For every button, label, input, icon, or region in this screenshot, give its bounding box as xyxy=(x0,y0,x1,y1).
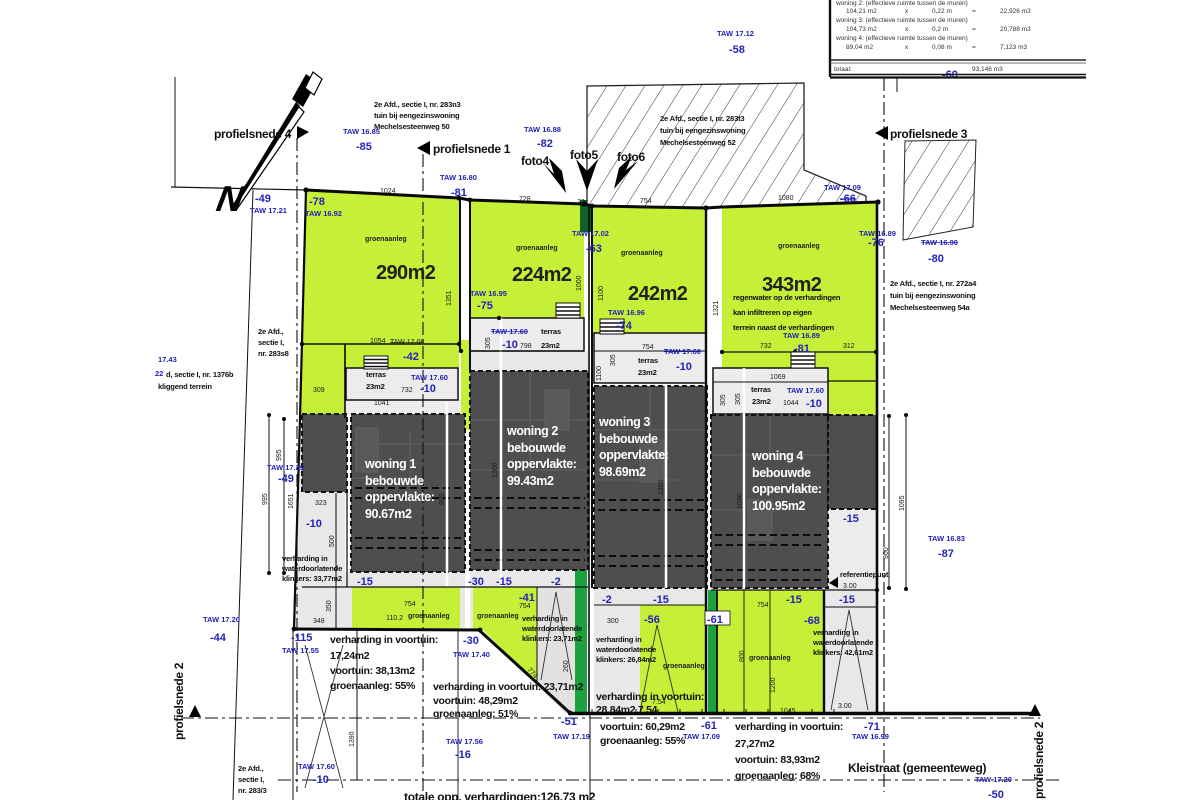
svg-text:TAW 17.21: TAW 17.21 xyxy=(250,206,287,215)
svg-text:-115: -115 xyxy=(291,632,312,644)
svg-text:groenaanleg: 51%: groenaanleg: 51% xyxy=(433,708,519,720)
svg-text:verharding in voortuin: 23,71m: verharding in voortuin: 23,71m2 xyxy=(433,681,583,693)
svg-text:groenaanleg: groenaanleg xyxy=(749,655,791,662)
svg-text:1054: 1054 xyxy=(370,338,386,345)
svg-text:1200: 1200 xyxy=(770,677,777,693)
svg-text:profielsnede 2: profielsnede 2 xyxy=(172,662,186,740)
svg-text:-66: -66 xyxy=(840,193,856,205)
svg-text:foto6: foto6 xyxy=(617,150,645,164)
svg-text:1095: 1095 xyxy=(899,495,906,511)
svg-text:-44: -44 xyxy=(210,632,227,644)
svg-text:300: 300 xyxy=(607,618,619,625)
svg-text:23m2: 23m2 xyxy=(638,368,657,377)
svg-text:110.2: 110.2 xyxy=(386,615,403,622)
svg-text:TAW 17.60: TAW 17.60 xyxy=(491,327,528,336)
svg-text:groenaanleg: groenaanleg xyxy=(621,250,663,257)
svg-text:tuin bij eengezinswoning: tuin bij eengezinswoning xyxy=(374,111,460,120)
svg-text:23m2: 23m2 xyxy=(366,382,385,391)
svg-text:oppervlakte:: oppervlakte: xyxy=(752,482,822,496)
svg-text:Mechelsesteenweg 54a: Mechelsesteenweg 54a xyxy=(890,303,971,312)
svg-text:groenaanleg: 55%: groenaanleg: 55% xyxy=(600,735,686,747)
svg-text:305: 305 xyxy=(735,393,742,405)
svg-text:TAW 17.09: TAW 17.09 xyxy=(824,183,861,192)
svg-text:104,73 m2: 104,73 m2 xyxy=(846,26,877,33)
svg-text:klinkers: 23,71m2: klinkers: 23,71m2 xyxy=(522,634,582,643)
svg-text:312: 312 xyxy=(843,343,855,350)
svg-text:1321: 1321 xyxy=(713,300,720,316)
svg-text:groenaanleg: groenaanleg xyxy=(365,236,407,243)
svg-text:TAW 16.83: TAW 16.83 xyxy=(928,534,965,543)
svg-text:20,788 m3: 20,788 m3 xyxy=(1000,26,1031,33)
svg-text:93,146 m3: 93,146 m3 xyxy=(972,66,1003,73)
svg-text:7,123 m3: 7,123 m3 xyxy=(1000,44,1027,51)
svg-text:TAW 17.40: TAW 17.40 xyxy=(453,650,490,659)
svg-text:1096: 1096 xyxy=(737,493,744,509)
svg-text:98.69m2: 98.69m2 xyxy=(599,465,646,479)
svg-text:d, sectie I, nr. 1376b: d, sectie I, nr. 1376b xyxy=(166,370,234,379)
svg-text:-15: -15 xyxy=(786,594,802,606)
svg-text:sectie I,: sectie I, xyxy=(258,338,284,347)
svg-text:woning 3: woning 3 xyxy=(598,415,650,429)
svg-text:754: 754 xyxy=(757,602,769,609)
svg-text:323: 323 xyxy=(315,500,327,507)
svg-text:bebouwde: bebouwde xyxy=(507,441,566,455)
svg-text:-10: -10 xyxy=(806,398,822,410)
svg-text:350: 350 xyxy=(326,600,333,612)
svg-text:TAW 17.20: TAW 17.20 xyxy=(203,615,240,624)
svg-text:17.43: 17.43 xyxy=(158,355,177,364)
svg-text:TAW 16.90: TAW 16.90 xyxy=(921,238,958,247)
svg-text:1041: 1041 xyxy=(374,400,390,407)
svg-text:305: 305 xyxy=(485,337,492,349)
svg-text:-15: -15 xyxy=(843,513,859,525)
svg-text:totaal:: totaal: xyxy=(834,66,852,73)
svg-text:verharding in: verharding in xyxy=(282,554,328,563)
svg-text:profielsnede 4: profielsnede 4 xyxy=(214,127,292,141)
svg-text:kliggend terrein: kliggend terrein xyxy=(158,382,212,391)
svg-text:305: 305 xyxy=(720,394,727,406)
svg-text:oppervlakte:: oppervlakte: xyxy=(599,448,669,462)
svg-text:TAW 16.80: TAW 16.80 xyxy=(440,173,477,182)
svg-text:754: 754 xyxy=(519,603,531,610)
svg-text:100.95m2: 100.95m2 xyxy=(752,499,806,513)
svg-text:3.00: 3.00 xyxy=(843,583,857,590)
svg-text:754: 754 xyxy=(404,601,416,608)
svg-text:TAW 17.60: TAW 17.60 xyxy=(411,373,448,382)
svg-text:groenaanleg: 68%: groenaanleg: 68% xyxy=(735,770,821,782)
svg-text:1351: 1351 xyxy=(446,290,453,306)
svg-text:22,926 m3: 22,926 m3 xyxy=(1000,8,1031,15)
svg-text:terras: terras xyxy=(541,327,561,336)
svg-text:28,84m2 7,54: 28,84m2 7,54 xyxy=(596,704,658,716)
svg-text:=: = xyxy=(972,8,976,15)
svg-text:305: 305 xyxy=(610,354,617,366)
svg-text:terras: terras xyxy=(638,356,658,365)
svg-text:groenaanleg: groenaanleg xyxy=(477,613,519,620)
svg-text:728: 728 xyxy=(519,196,531,203)
svg-text:voortuin: 83,93m2: voortuin: 83,93m2 xyxy=(735,754,820,766)
svg-text:klinkers: 26,84m2: klinkers: 26,84m2 xyxy=(596,655,656,664)
svg-text:-15: -15 xyxy=(357,576,373,588)
svg-text:tuin bij eengezinswoning: tuin bij eengezinswoning xyxy=(890,291,976,300)
svg-text:90.67m2: 90.67m2 xyxy=(365,507,412,521)
svg-text:2e Afd.,: 2e Afd., xyxy=(258,327,284,336)
svg-text:1024: 1024 xyxy=(380,188,396,195)
svg-text:waterdoorlatende: waterdoorlatende xyxy=(281,564,342,573)
svg-text:500: 500 xyxy=(329,535,336,547)
svg-text:0,08 m: 0,08 m xyxy=(932,44,952,51)
svg-text:TAW 17.29: TAW 17.29 xyxy=(267,463,304,472)
svg-text:TAW 17.60: TAW 17.60 xyxy=(298,762,335,771)
svg-text:309: 309 xyxy=(313,387,325,394)
svg-text:1080: 1080 xyxy=(778,195,794,202)
svg-text:TAW 17.19: TAW 17.19 xyxy=(553,732,590,741)
svg-text:-80: -80 xyxy=(928,253,944,265)
svg-text:-74: -74 xyxy=(616,320,633,332)
svg-text:798: 798 xyxy=(520,343,532,350)
svg-text:1000: 1000 xyxy=(576,275,583,291)
svg-text:1651: 1651 xyxy=(288,493,295,509)
svg-text:profielsnede 1: profielsnede 1 xyxy=(433,142,511,156)
svg-text:TAW 17.60: TAW 17.60 xyxy=(787,386,824,395)
svg-text:verharding in: verharding in xyxy=(813,628,859,637)
svg-text:verharding in voortuin:: verharding in voortuin: xyxy=(735,721,843,733)
svg-text:2e Afd., sectie I, nr. 283n3: 2e Afd., sectie I, nr. 283n3 xyxy=(374,100,461,109)
svg-text:-87: -87 xyxy=(938,548,954,560)
svg-text:groenaanleg: groenaanleg xyxy=(408,613,450,620)
svg-text:-10: -10 xyxy=(676,361,692,373)
svg-text:-10: -10 xyxy=(502,339,518,351)
svg-text:-76: -76 xyxy=(868,237,884,249)
svg-text:referentiepunt: referentiepunt xyxy=(840,570,889,579)
svg-text:-2: -2 xyxy=(602,594,612,606)
svg-text:-15: -15 xyxy=(653,594,669,606)
svg-text:-10: -10 xyxy=(306,518,322,530)
svg-text:1044: 1044 xyxy=(783,400,799,407)
svg-text:-68: -68 xyxy=(804,615,820,627)
svg-text:TAW 17.55: TAW 17.55 xyxy=(282,646,319,655)
svg-text:TAW 17.09: TAW 17.09 xyxy=(683,732,720,741)
svg-text:bebouwde: bebouwde xyxy=(599,432,658,446)
svg-text:-16: -16 xyxy=(455,749,471,761)
svg-text:waterdoorlatende: waterdoorlatende xyxy=(812,638,873,647)
svg-text:995: 995 xyxy=(262,493,269,505)
svg-text:TAW 17.12: TAW 17.12 xyxy=(717,29,754,38)
svg-text:woning 1: woning 1 xyxy=(364,457,416,471)
svg-text:22: 22 xyxy=(155,369,163,378)
svg-text:=: = xyxy=(972,26,976,33)
svg-text:348: 348 xyxy=(313,618,325,625)
svg-text:27,27m2: 27,27m2 xyxy=(735,738,775,750)
svg-text:TAW 17.56: TAW 17.56 xyxy=(446,737,483,746)
svg-text:754: 754 xyxy=(642,344,654,351)
svg-text:woning 3: (effectieve ruimte: woning 3: (effectieve ruimte tussen de m… xyxy=(835,17,968,24)
svg-text:verharding in voortuin:: verharding in voortuin: xyxy=(330,634,438,646)
svg-text:Kleistraat (gemeenteweg): Kleistraat (gemeenteweg) xyxy=(848,761,986,775)
svg-text:-56: -56 xyxy=(644,614,660,626)
svg-text:-2: -2 xyxy=(551,576,561,588)
svg-text:TAW 16.85: TAW 16.85 xyxy=(343,127,380,136)
svg-text:104,21 m2: 104,21 m2 xyxy=(846,8,877,15)
svg-text:nr. 283s8: nr. 283s8 xyxy=(258,349,289,358)
svg-text:-50: -50 xyxy=(988,789,1004,800)
svg-text:-49: -49 xyxy=(255,193,271,205)
svg-text:1045: 1045 xyxy=(780,708,796,715)
svg-text:profielsnede 2: profielsnede 2 xyxy=(1032,721,1046,799)
svg-text:verharding in: verharding in xyxy=(596,635,642,644)
svg-text:TAW 17.20: TAW 17.20 xyxy=(975,775,1012,784)
svg-text:TAW 16.92: TAW 16.92 xyxy=(305,209,342,218)
svg-text:kan infiltreren op eigen: kan infiltreren op eigen xyxy=(733,308,812,317)
svg-text:23m2: 23m2 xyxy=(541,341,560,350)
svg-text:-49: -49 xyxy=(278,473,294,485)
svg-text:woning 4: woning 4 xyxy=(751,449,803,463)
svg-text:22: 22 xyxy=(577,199,585,206)
svg-text:1300: 1300 xyxy=(658,479,665,495)
svg-text:-81: -81 xyxy=(794,343,810,355)
svg-text:groenaanleg: 55%: groenaanleg: 55% xyxy=(330,680,416,692)
svg-text:1390: 1390 xyxy=(349,731,356,747)
svg-text:klinkers: 42,61m2: klinkers: 42,61m2 xyxy=(813,648,873,657)
svg-text:Mechelsesteenweg 50: Mechelsesteenweg 50 xyxy=(374,122,450,131)
svg-text:1300: 1300 xyxy=(492,462,499,478)
svg-text:groenaanleg: groenaanleg xyxy=(516,245,558,252)
svg-text:regenwater op de verhardingen: regenwater op de verhardingen xyxy=(733,293,841,302)
svg-text:242m2: 242m2 xyxy=(628,283,688,305)
svg-text:foto5: foto5 xyxy=(570,148,598,162)
svg-text:Mechelsesteenweg 52: Mechelsesteenweg 52 xyxy=(660,138,736,147)
svg-text:verharding in voortuin:: verharding in voortuin: xyxy=(596,691,704,703)
svg-text:voortuin: 38,13m2: voortuin: 38,13m2 xyxy=(330,665,415,677)
svg-text:23m2: 23m2 xyxy=(752,397,771,406)
svg-text:732: 732 xyxy=(401,387,413,394)
svg-text:foto4: foto4 xyxy=(521,154,549,168)
svg-text:17,24m2: 17,24m2 xyxy=(330,650,370,662)
svg-text:TAW 16.96: TAW 16.96 xyxy=(608,308,645,317)
svg-text:oppervlakte:: oppervlakte: xyxy=(365,490,435,504)
svg-text:TAW 16.88: TAW 16.88 xyxy=(524,125,561,134)
svg-text:terras: terras xyxy=(751,385,771,394)
svg-text:-75: -75 xyxy=(477,300,493,312)
svg-text:800: 800 xyxy=(739,650,746,662)
svg-text:TAW 17.02: TAW 17.02 xyxy=(572,229,609,238)
svg-text:2e Afd., sectie I, nr. 283t3: 2e Afd., sectie I, nr. 283t3 xyxy=(660,114,744,123)
svg-text:-51: -51 xyxy=(561,716,577,728)
svg-text:oppervlakte:: oppervlakte: xyxy=(507,457,577,471)
svg-text:TAW 17.60: TAW 17.60 xyxy=(664,347,701,356)
svg-text:TAW 16.89: TAW 16.89 xyxy=(783,331,820,340)
svg-text:TAW 16.99: TAW 16.99 xyxy=(852,732,889,741)
svg-text:-81: -81 xyxy=(451,187,467,199)
svg-text:groenaanleg: groenaanleg xyxy=(663,663,705,670)
svg-text:3.00: 3.00 xyxy=(838,703,852,710)
svg-text:754: 754 xyxy=(640,198,652,205)
svg-text:-82: -82 xyxy=(537,138,553,150)
svg-text:99.43m2: 99.43m2 xyxy=(507,474,554,488)
svg-text:-10: -10 xyxy=(313,774,329,786)
svg-text:-30: -30 xyxy=(468,576,484,588)
svg-text:groenaanleg: groenaanleg xyxy=(778,243,820,250)
svg-text:bebouwde: bebouwde xyxy=(365,474,424,488)
svg-text:-42: -42 xyxy=(403,351,419,363)
svg-text:732: 732 xyxy=(760,343,772,350)
svg-text:woning 4: (effectieve ruimte: woning 4: (effectieve ruimte tussen de m… xyxy=(835,35,968,42)
svg-text:-30: -30 xyxy=(463,635,479,647)
svg-text:totale opp. verhardingen:126,7: totale opp. verhardingen:126,73 m2 xyxy=(404,790,596,800)
svg-text:terras: terras xyxy=(366,370,386,379)
svg-text:-63: -63 xyxy=(586,243,602,255)
svg-text:waterdoorlatende: waterdoorlatende xyxy=(521,624,582,633)
svg-text:1100: 1100 xyxy=(598,286,605,301)
svg-text:-78: -78 xyxy=(309,196,325,208)
svg-text:tuin bij eengezinswoning: tuin bij eengezinswoning xyxy=(660,126,746,135)
svg-text:7.54: 7.54 xyxy=(652,699,666,706)
svg-text:0,22 m: 0,22 m xyxy=(932,8,952,15)
svg-text:bebouwde: bebouwde xyxy=(752,466,811,480)
svg-text:-61: -61 xyxy=(707,614,723,626)
svg-text:voortuin: 60,29m2: voortuin: 60,29m2 xyxy=(600,721,685,733)
svg-text:89,04 m2: 89,04 m2 xyxy=(846,44,873,51)
svg-text:995: 995 xyxy=(439,493,446,505)
svg-text:-61: -61 xyxy=(701,720,717,732)
svg-text:profielsnede 3: profielsnede 3 xyxy=(890,127,968,141)
svg-text:woning 2: (effectieve ruimte: woning 2: (effectieve ruimte tussen de m… xyxy=(835,0,968,7)
svg-text:TAW 16.95: TAW 16.95 xyxy=(470,289,507,298)
svg-text:=: = xyxy=(972,44,976,51)
svg-text:1069: 1069 xyxy=(770,374,786,381)
svg-text:0,2 m: 0,2 m xyxy=(932,26,948,33)
svg-text:sectie I,: sectie I, xyxy=(238,775,264,784)
svg-text:waterdoorlatende: waterdoorlatende xyxy=(595,645,656,654)
svg-text:woning 2: woning 2 xyxy=(506,424,558,438)
svg-text:nr. 283/3: nr. 283/3 xyxy=(238,786,267,795)
svg-text:2e Afd.,: 2e Afd., xyxy=(238,764,264,773)
svg-text:900: 900 xyxy=(883,547,890,559)
svg-text:voortuin: 48,29m2: voortuin: 48,29m2 xyxy=(433,695,518,707)
svg-text:995: 995 xyxy=(276,449,283,461)
svg-text:klinkers: 33,77m2: klinkers: 33,77m2 xyxy=(282,574,342,583)
svg-text:260: 260 xyxy=(563,660,570,672)
svg-text:-15: -15 xyxy=(496,576,512,588)
svg-text:2e Afd., sectie I, nr. 272a4: 2e Afd., sectie I, nr. 272a4 xyxy=(890,279,977,288)
svg-text:-85: -85 xyxy=(356,141,372,153)
svg-text:verharding in: verharding in xyxy=(522,614,568,623)
svg-text:-58: -58 xyxy=(729,44,745,56)
svg-text:1100: 1100 xyxy=(596,366,603,381)
svg-text:290m2: 290m2 xyxy=(376,262,436,284)
svg-text:TAW 17.08: TAW 17.08 xyxy=(390,339,424,346)
svg-text:224m2: 224m2 xyxy=(512,264,572,286)
svg-text:-15: -15 xyxy=(839,594,855,606)
svg-text:-10: -10 xyxy=(420,383,436,395)
